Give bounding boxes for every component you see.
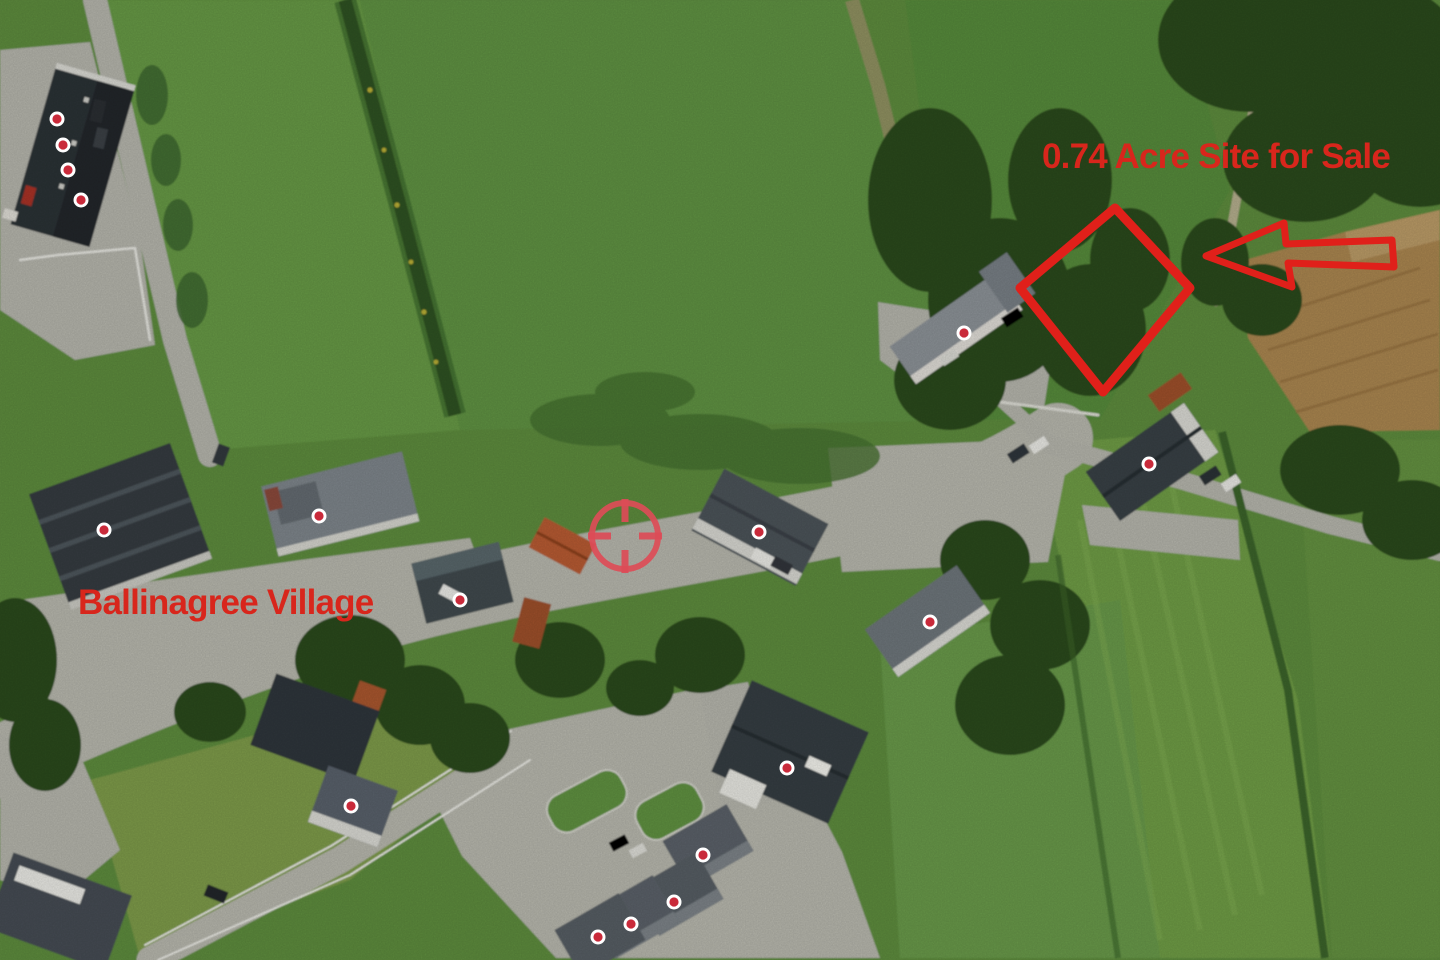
property-marker-dot	[346, 801, 355, 810]
property-marker-dot	[754, 527, 763, 536]
aerial-photo: 0.74 Acre Site for Sale Ballinagree Vill…	[0, 0, 1440, 960]
site-markers	[50, 112, 1157, 945]
site-for-sale-label: 0.74 Acre Site for Sale	[1042, 137, 1390, 176]
property-marker-dot	[669, 897, 678, 906]
property-marker-dot	[58, 140, 67, 149]
site-outline	[1020, 208, 1190, 392]
crosshair-icon	[588, 499, 662, 573]
property-marker-dot	[1144, 459, 1153, 468]
property-marker-dot	[76, 195, 85, 204]
property-marker-dot	[782, 763, 791, 772]
property-marker-dot	[455, 595, 464, 604]
property-marker-dot	[626, 919, 635, 928]
property-marker-dot	[63, 165, 72, 174]
property-marker-dot	[99, 525, 108, 534]
property-marker-dot	[959, 328, 968, 337]
property-marker-dot	[52, 114, 61, 123]
property-marker-dot	[925, 617, 934, 626]
property-marker-dot	[314, 511, 323, 520]
property-marker-dot	[593, 932, 602, 941]
property-marker-dot	[698, 850, 707, 859]
village-name-label: Ballinagree Village	[78, 583, 374, 622]
site-arrow-icon	[1206, 223, 1394, 287]
map-annotations: 0.74 Acre Site for Sale Ballinagree Vill…	[0, 0, 1440, 960]
